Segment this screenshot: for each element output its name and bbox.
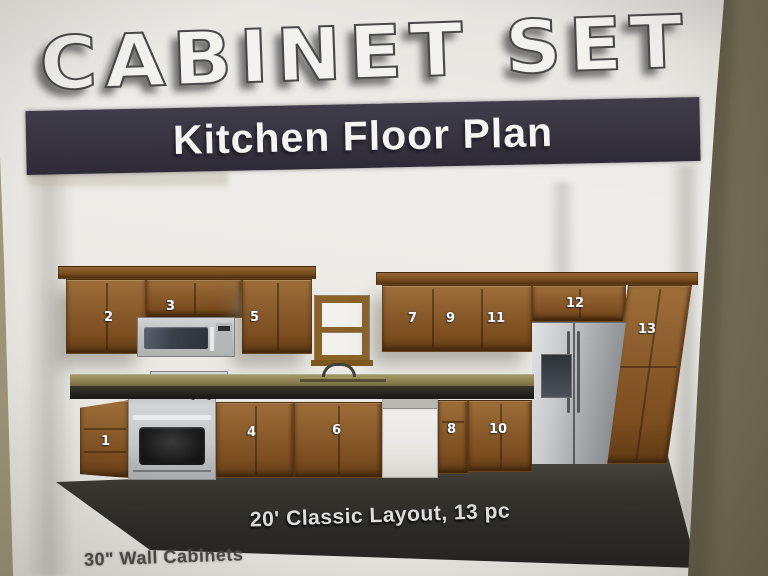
base-cabinet-6 — [294, 402, 382, 478]
right-wall-cabinet-crown — [376, 272, 698, 285]
door-divider — [481, 289, 483, 348]
storage-drawer-line — [133, 470, 211, 472]
cabinet-label-5: 5 — [250, 310, 259, 325]
refrigerator-handle-right — [577, 331, 580, 413]
left-wall-cabinet-crown — [58, 266, 316, 279]
cabinet-label-2: 2 — [104, 310, 113, 325]
range-oven — [128, 388, 216, 480]
microwave-control-panel — [216, 323, 232, 353]
microwave — [137, 317, 235, 357]
cabinet-label-3: 3 — [166, 299, 175, 314]
door-rail — [620, 366, 676, 368]
cabinet-label-13: 13 — [638, 322, 656, 337]
cabinet-label-10: 10 — [489, 422, 507, 437]
drawer-divider — [84, 428, 126, 430]
microwave-window — [144, 327, 208, 349]
base-cabinet-4 — [216, 402, 294, 478]
cabinet-label-7: 7 — [408, 311, 417, 326]
kitchen-rendering: 1 2 3 4 5 6 7 8 9 10 11 12 13 20' Classi… — [0, 0, 768, 576]
base-cabinet-8 — [438, 400, 468, 474]
microwave-display — [218, 326, 230, 331]
door-divider — [255, 406, 257, 474]
dishwasher — [382, 398, 438, 478]
cabinet-label-12: 12 — [566, 296, 584, 311]
cabinet-label-6: 6 — [332, 423, 341, 438]
window — [315, 296, 369, 362]
oven-window — [139, 427, 205, 465]
cabinet-label-4: 4 — [247, 425, 256, 440]
oven-handle — [133, 415, 211, 420]
cabinet-label-1: 1 — [101, 434, 110, 449]
sink-line — [300, 379, 386, 382]
flyer-paper: CABINET SET Kitchen Floor Plan — [0, 0, 768, 576]
drawer-divider — [84, 451, 126, 453]
microwave-handle — [210, 327, 214, 351]
refrigerator-door-seam — [573, 323, 575, 464]
wall-cabinets-7-9-11 — [382, 285, 532, 352]
door-divider — [635, 289, 661, 460]
door-divider — [194, 283, 196, 314]
window-sash-bar — [322, 327, 362, 332]
ice-dispenser — [541, 354, 571, 398]
dishwasher-control-strip — [383, 399, 437, 409]
door-divider — [432, 289, 434, 348]
cabinet-label-11: 11 — [487, 311, 505, 326]
wall-cabinet-3 — [146, 279, 242, 318]
door-divider — [277, 283, 279, 350]
countertop-edge — [70, 386, 534, 399]
cabinet-label-8: 8 — [447, 422, 456, 437]
cabinet-label-9: 9 — [446, 311, 455, 326]
door-divider — [338, 406, 340, 474]
photo-of-cabinet-flyer: CABINET SET Kitchen Floor Plan — [0, 0, 768, 576]
